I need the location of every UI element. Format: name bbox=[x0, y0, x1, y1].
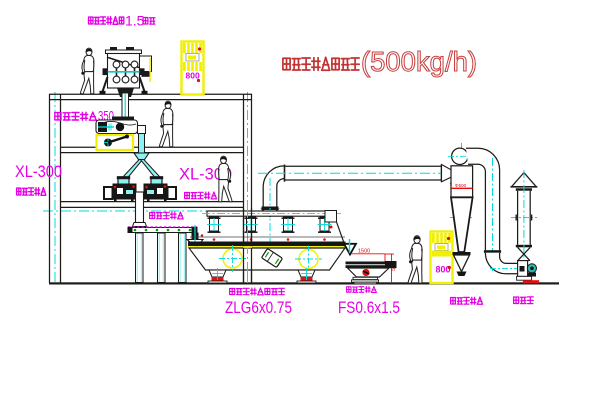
svg-text:1500: 1500 bbox=[358, 249, 370, 255]
svg-text:800: 800 bbox=[186, 71, 200, 81]
svg-text:800: 800 bbox=[436, 265, 451, 275]
svg-text:(500kg/h): (500kg/h) bbox=[361, 46, 477, 77]
svg-text:ZLG6x0.75: ZLG6x0.75 bbox=[225, 298, 292, 317]
svg-text:1.5: 1.5 bbox=[125, 13, 145, 29]
svg-text:XL-300: XL-300 bbox=[15, 162, 62, 181]
svg-text:FS0.6x1.5: FS0.6x1.5 bbox=[338, 298, 400, 317]
svg-text:Φ500: Φ500 bbox=[455, 183, 467, 188]
